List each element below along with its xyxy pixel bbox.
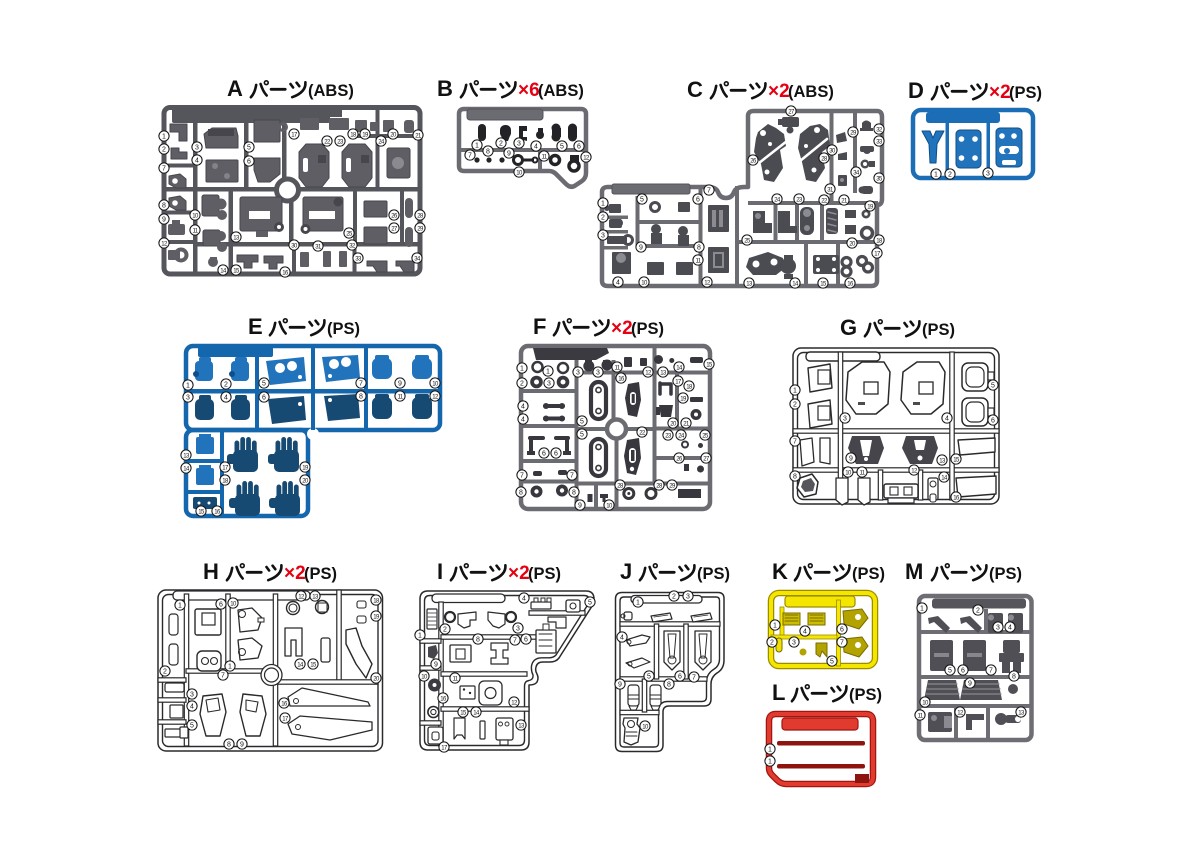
svg-text:9: 9 xyxy=(849,455,853,462)
svg-text:4: 4 xyxy=(521,403,525,410)
svg-text:2: 2 xyxy=(520,380,524,387)
svg-text:(PS): (PS) xyxy=(989,565,1022,583)
svg-text:2: 2 xyxy=(672,593,676,600)
svg-text:(ABS): (ABS) xyxy=(308,82,354,100)
svg-text:F: F xyxy=(533,314,546,339)
svg-text:I: I xyxy=(437,559,443,584)
svg-text:1: 1 xyxy=(773,622,777,629)
svg-text:7: 7 xyxy=(162,165,166,172)
svg-text:2: 2 xyxy=(224,381,228,388)
svg-text:5: 5 xyxy=(560,143,564,150)
svg-text:3: 3 xyxy=(547,380,551,387)
svg-text:5: 5 xyxy=(580,418,584,425)
svg-text:2: 2 xyxy=(976,607,980,614)
svg-text:2: 2 xyxy=(163,668,167,675)
svg-text:2: 2 xyxy=(948,171,952,178)
svg-text:9: 9 xyxy=(240,741,244,748)
svg-text:1: 1 xyxy=(546,368,550,375)
svg-text:1: 1 xyxy=(418,632,422,639)
svg-text:3: 3 xyxy=(601,232,605,239)
svg-text:1: 1 xyxy=(162,133,166,140)
svg-text:6: 6 xyxy=(961,667,965,674)
svg-text:6: 6 xyxy=(542,450,546,457)
svg-text:5: 5 xyxy=(647,673,651,680)
svg-text:6: 6 xyxy=(991,417,995,424)
svg-text:4: 4 xyxy=(521,416,525,423)
svg-text:5: 5 xyxy=(588,599,592,606)
svg-text:1: 1 xyxy=(520,365,524,372)
svg-text:M: M xyxy=(905,559,923,584)
svg-text:1: 1 xyxy=(768,758,772,765)
svg-text:7: 7 xyxy=(707,187,711,194)
svg-text:7: 7 xyxy=(840,639,844,646)
svg-text:1: 1 xyxy=(636,599,640,606)
svg-text:7: 7 xyxy=(989,667,993,674)
svg-text:B: B xyxy=(437,76,453,101)
svg-text:9: 9 xyxy=(507,150,511,157)
svg-text:×2: ×2 xyxy=(989,82,1011,103)
svg-text:8: 8 xyxy=(697,244,701,251)
svg-text:6: 6 xyxy=(840,626,844,633)
svg-text:3: 3 xyxy=(792,639,796,646)
svg-text:7: 7 xyxy=(221,672,225,679)
svg-text:1: 1 xyxy=(178,602,182,609)
svg-text:8: 8 xyxy=(227,741,231,748)
svg-text:3: 3 xyxy=(843,415,847,422)
svg-text:7: 7 xyxy=(793,438,797,445)
svg-text:4: 4 xyxy=(620,634,624,641)
svg-text:5: 5 xyxy=(640,196,644,203)
svg-text:D: D xyxy=(908,78,924,103)
svg-text:5: 5 xyxy=(948,667,952,674)
svg-text:7: 7 xyxy=(692,674,696,681)
svg-text:(PS): (PS) xyxy=(304,565,337,583)
svg-text:9: 9 xyxy=(968,680,972,687)
svg-text:(PS): (PS) xyxy=(849,686,882,704)
svg-text:8: 8 xyxy=(793,473,797,480)
svg-text:9: 9 xyxy=(434,661,438,668)
svg-text:(ABS): (ABS) xyxy=(538,82,584,100)
svg-text:E: E xyxy=(248,314,263,339)
svg-text:×2: ×2 xyxy=(284,563,306,584)
svg-text:2: 2 xyxy=(793,401,797,408)
svg-text:C: C xyxy=(687,77,703,102)
svg-text:1: 1 xyxy=(934,171,938,178)
svg-text:8: 8 xyxy=(162,202,166,209)
svg-text:4: 4 xyxy=(190,703,194,710)
svg-text:4: 4 xyxy=(945,415,949,422)
svg-text:A: A xyxy=(227,76,243,101)
svg-text:7: 7 xyxy=(359,380,363,387)
svg-text:(PS): (PS) xyxy=(631,320,664,338)
svg-text:7: 7 xyxy=(468,152,472,159)
svg-text:5: 5 xyxy=(262,380,266,387)
svg-text:6: 6 xyxy=(554,450,558,457)
svg-text:3: 3 xyxy=(517,140,521,147)
svg-text:6: 6 xyxy=(524,636,528,643)
svg-text:(PS): (PS) xyxy=(922,321,955,339)
svg-text:7: 7 xyxy=(570,472,574,479)
svg-text:×2: ×2 xyxy=(768,81,790,102)
svg-text:2: 2 xyxy=(601,214,605,221)
svg-text:1: 1 xyxy=(601,200,605,207)
svg-text:(PS): (PS) xyxy=(697,565,730,583)
svg-text:2: 2 xyxy=(770,639,774,646)
svg-text:1: 1 xyxy=(186,382,190,389)
svg-text:K: K xyxy=(772,559,788,584)
svg-text:L: L xyxy=(772,680,785,705)
svg-text:9: 9 xyxy=(578,502,582,509)
svg-text:3: 3 xyxy=(996,624,1000,631)
svg-text:4: 4 xyxy=(616,279,620,286)
svg-text:×2: ×2 xyxy=(611,318,633,339)
svg-text:1: 1 xyxy=(768,746,772,753)
svg-text:G: G xyxy=(840,315,857,340)
svg-text:3: 3 xyxy=(186,394,190,401)
svg-text:(PS): (PS) xyxy=(852,565,885,583)
svg-text:8: 8 xyxy=(1012,673,1016,680)
svg-text:4: 4 xyxy=(522,595,526,602)
svg-text:4: 4 xyxy=(1008,624,1012,631)
svg-text:4: 4 xyxy=(534,143,538,150)
svg-text:×6: ×6 xyxy=(518,80,540,101)
svg-text:6: 6 xyxy=(219,601,223,608)
svg-text:8: 8 xyxy=(667,681,671,688)
svg-text:(PS): (PS) xyxy=(327,320,360,338)
svg-text:8: 8 xyxy=(572,489,576,496)
svg-text:×2: ×2 xyxy=(508,563,530,584)
svg-text:1: 1 xyxy=(920,605,924,612)
svg-text:5: 5 xyxy=(830,658,834,665)
svg-text:3: 3 xyxy=(686,593,690,600)
svg-text:(ABS): (ABS) xyxy=(788,83,834,101)
svg-text:5: 5 xyxy=(580,431,584,438)
svg-text:8: 8 xyxy=(519,489,523,496)
svg-text:4: 4 xyxy=(195,157,199,164)
svg-text:5: 5 xyxy=(190,722,194,729)
svg-text:6: 6 xyxy=(678,673,682,680)
svg-text:9: 9 xyxy=(398,380,402,387)
svg-text:6: 6 xyxy=(262,394,266,401)
svg-text:7: 7 xyxy=(513,637,517,644)
svg-text:2: 2 xyxy=(499,140,503,147)
svg-text:5: 5 xyxy=(247,144,251,151)
svg-text:J: J xyxy=(620,559,632,584)
svg-text:1: 1 xyxy=(793,387,797,394)
svg-text:9: 9 xyxy=(618,681,622,688)
svg-text:3: 3 xyxy=(195,144,199,151)
svg-text:2: 2 xyxy=(162,146,166,153)
svg-text:8: 8 xyxy=(359,393,363,400)
svg-text:5: 5 xyxy=(991,382,995,389)
svg-text:4: 4 xyxy=(224,394,228,401)
svg-text:H: H xyxy=(203,559,219,584)
svg-text:3: 3 xyxy=(516,625,520,632)
svg-text:3: 3 xyxy=(190,691,194,698)
svg-text:8: 8 xyxy=(476,636,480,643)
svg-text:(PS): (PS) xyxy=(1009,84,1042,102)
svg-text:6: 6 xyxy=(696,196,700,203)
svg-text:7: 7 xyxy=(520,472,524,479)
svg-text:9: 9 xyxy=(162,216,166,223)
svg-text:3: 3 xyxy=(986,170,990,177)
svg-text:4: 4 xyxy=(803,628,807,635)
svg-text:3: 3 xyxy=(576,369,580,376)
svg-text:2: 2 xyxy=(443,626,447,633)
svg-text:3: 3 xyxy=(596,369,600,376)
svg-text:8: 8 xyxy=(486,148,490,155)
svg-text:9: 9 xyxy=(639,244,643,251)
svg-text:1: 1 xyxy=(475,142,479,149)
svg-text:1: 1 xyxy=(228,663,232,670)
svg-text:(PS): (PS) xyxy=(528,565,561,583)
svg-text:6: 6 xyxy=(577,143,581,150)
svg-text:6: 6 xyxy=(247,158,251,165)
